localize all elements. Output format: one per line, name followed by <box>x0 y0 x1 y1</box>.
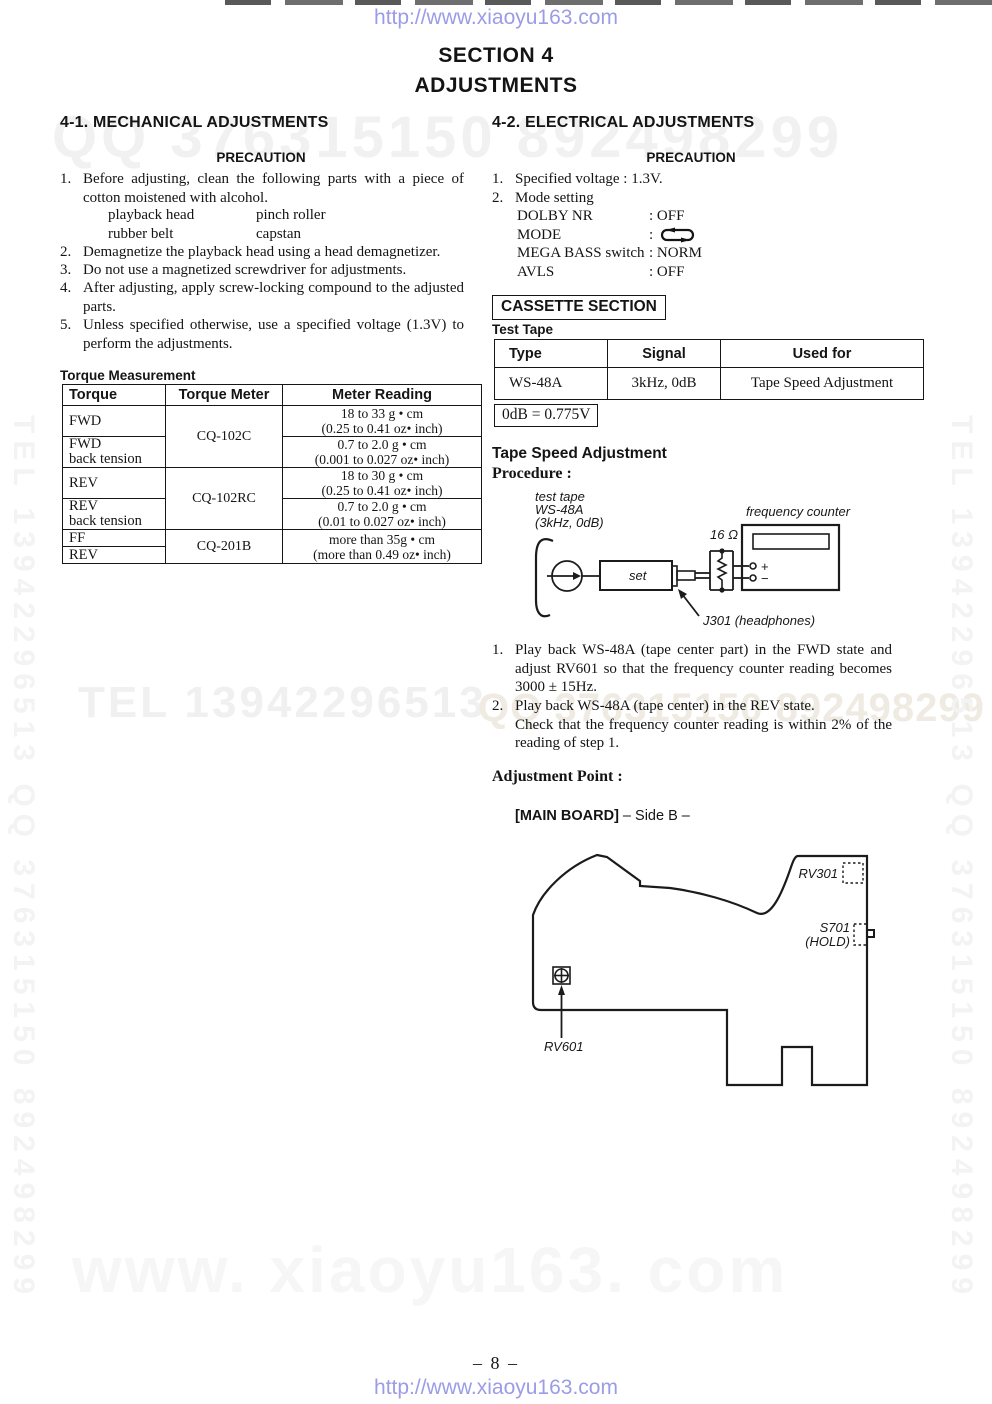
item-text: Before adjusting, clean the following pa… <box>83 170 464 207</box>
reading-ff-rev: more than 35g • cm (more than 0.49 oz• i… <box>283 530 482 564</box>
col-header-torque: Torque <box>63 385 166 406</box>
item-number: 2. <box>60 243 83 262</box>
reading-line: 18 to 30 g • cm <box>287 468 477 483</box>
bottom-url-watermark: http://www.xiaoyu163.com <box>0 1376 992 1400</box>
mode-label: MEGA BASS switch <box>517 244 649 263</box>
reading-line: (0.25 to 0.41 oz• inch) <box>287 421 477 436</box>
main-board-label: [MAIN BOARD] <box>515 808 619 824</box>
mode-value: : OFF <box>649 207 684 226</box>
mode-row-mode: MODE : <box>517 226 892 245</box>
part-playback-head: playback head <box>108 206 256 225</box>
item-text: Mode setting <box>515 189 892 208</box>
watermark-bottom: www. xiaoyu163. com <box>72 1233 788 1307</box>
meter-cq102c: CQ-102C <box>166 406 283 468</box>
set-label: set <box>629 568 648 583</box>
item-text: Demagnetize the playback head using a he… <box>83 243 464 262</box>
parts-to-clean-list: playback head pinch roller rubber belt c… <box>108 206 468 243</box>
meter-cq201b: CQ-201B <box>166 530 283 564</box>
minus-sign: − <box>761 571 769 586</box>
left-precaution-item-1: 1. Before adjusting, clean the following… <box>60 170 464 207</box>
db-reference-box: 0dB = 0.775V <box>494 404 598 427</box>
s701-dotted-box <box>854 924 867 945</box>
item-number: 1. <box>60 170 83 207</box>
col-header-signal: Signal <box>608 340 721 368</box>
cell-line: back tension <box>69 514 161 529</box>
torque-rev2: REV <box>63 547 166 564</box>
section-title: ADJUSTMENTS <box>0 74 992 98</box>
item-text: Unless specified otherwise, use a specif… <box>83 316 464 353</box>
j301-label: J301 (headphones) <box>702 613 815 628</box>
torque-ff: FF <box>63 530 166 547</box>
step-number: 2. <box>492 697 515 753</box>
scan-artifact-strip <box>225 0 992 5</box>
reading-line: (0.25 to 0.41 oz• inch) <box>287 483 477 498</box>
col-header-meter-reading: Meter Reading <box>283 385 482 406</box>
table-row: REV CQ-102RC 18 to 30 g • cm (0.25 to 0.… <box>63 468 482 499</box>
torque-fwd-back-tension: FWD back tension <box>63 437 166 468</box>
step-text-line: Play back WS-48A (tape center) in the RE… <box>515 697 892 716</box>
item-text: After adjusting, apply screw-locking com… <box>83 279 464 316</box>
s701-hold-label: (HOLD) <box>805 934 850 949</box>
reading-line: (0.001 to 0.027 oz• inch) <box>287 452 477 467</box>
mode-label: DOLBY NR <box>517 207 649 226</box>
torque-fwd: FWD <box>63 406 166 437</box>
mode-row-avls: AVLS : OFF <box>517 263 892 282</box>
mode-setting-list: DOLBY NR : OFF MODE : MEGA BASS switch :… <box>492 207 892 281</box>
plug <box>677 571 695 580</box>
mode-value: : OFF <box>649 263 684 282</box>
watermark-left-vertical: TEL 13942296513 QQ 376315150 892498299 <box>6 415 40 1055</box>
mode-row-mega-bass: MEGA BASS switch : NORM <box>517 244 892 263</box>
frequency-counter-label: frequency counter <box>746 504 851 519</box>
colon: : <box>649 226 653 245</box>
torque-measurement-heading: Torque Measurement <box>60 368 196 383</box>
adjustment-point-heading: Adjustment Point : <box>492 768 623 786</box>
item-number: 5. <box>60 316 83 353</box>
meter-cq102rc: CQ-102RC <box>166 468 283 530</box>
reading-fwd-back-tension: 0.7 to 2.0 g • cm (0.001 to 0.027 oz• in… <box>283 437 482 468</box>
s701-label: S701 <box>820 920 850 935</box>
reading-line: 18 to 33 g • cm <box>287 406 477 421</box>
table-header-row: Torque Torque Meter Meter Reading <box>63 385 482 406</box>
left-precaution-item-3: 3. Do not use a magnetized screwdriver f… <box>60 261 464 280</box>
reading-line: 0.7 to 2.0 g • cm <box>287 499 477 514</box>
node-dot <box>719 548 724 553</box>
item-text: Specified voltage : 1.3V. <box>515 170 892 189</box>
reading-line: 0.7 to 2.0 g • cm <box>287 437 477 452</box>
part-rubber-belt: rubber belt <box>108 225 256 244</box>
part-pinch-roller: pinch roller <box>256 206 468 225</box>
torque-rev: REV <box>63 468 166 499</box>
table-row: FWD CQ-102C 18 to 33 g • cm (0.25 to 0.4… <box>63 406 482 437</box>
rv301-dotted-box <box>843 863 863 883</box>
right-precaution-item-1: 1. Specified voltage : 1.3V. <box>492 170 892 189</box>
scanned-service-manual-page: QQ 376315150 892498299 TEL 13942296513 Q… <box>0 0 992 1404</box>
item-number: 4. <box>60 279 83 316</box>
left-precaution-item-2: 2. Demagnetize the playback head using a… <box>60 243 464 262</box>
minus-terminal <box>750 575 756 581</box>
procedure-heading: Procedure : <box>492 465 572 483</box>
torque-rev-back-tension: REV back tension <box>63 499 166 530</box>
step-number: 1. <box>492 641 515 697</box>
left-precaution-item-5: 5. Unless specified otherwise, use a spe… <box>60 316 464 353</box>
table-row: WS-48A 3kHz, 0dB Tape Speed Adjustment <box>495 368 924 400</box>
reading-rev: 18 to 30 g • cm (0.25 to 0.41 oz• inch) <box>283 468 482 499</box>
node-dot <box>719 587 724 592</box>
col-header-torque-meter: Torque Meter <box>166 385 283 406</box>
watermark-right-vertical: TEL 13942296513 QQ 376315150 892498299 <box>944 415 978 1055</box>
reading-line: (more than 0.49 oz• inch) <box>287 547 477 562</box>
main-board-heading: [MAIN BOARD] – Side B – <box>515 808 690 824</box>
loop-mode-icon <box>660 227 696 242</box>
test-tape-label-line3: (3kHz, 0dB) <box>535 515 604 530</box>
reading-rev-back-tension: 0.7 to 2.0 g • cm (0.01 to 0.027 oz• inc… <box>283 499 482 530</box>
cell-line: FWD <box>69 437 161 452</box>
right-precaution-title: PRECAUTION <box>492 150 890 165</box>
j301-arrow-line <box>682 594 699 616</box>
mode-value: : NORM <box>649 244 702 263</box>
item-number: 3. <box>60 261 83 280</box>
reading-line: (0.01 to 0.027 oz• inch) <box>287 514 477 529</box>
step-text: Play back WS-48A (tape center part) in t… <box>515 641 892 697</box>
reading-fwd: 18 to 33 g • cm (0.25 to 0.41 oz• inch) <box>283 406 482 437</box>
right-column-heading: 4-2. ELECTRICAL ADJUSTMENTS <box>492 114 754 132</box>
top-url-watermark: http://www.xiaoyu163.com <box>0 6 992 30</box>
item-text: Do not use a magnetized screwdriver for … <box>83 261 464 280</box>
tape-used-for: Tape Speed Adjustment <box>721 368 924 400</box>
col-header-type: Type <box>495 340 608 368</box>
reel-arrow <box>573 572 581 580</box>
mode-label: MODE <box>517 226 649 245</box>
rv301-label: RV301 <box>798 866 838 881</box>
test-tape-table: Type Signal Used for WS-48A 3kHz, 0dB Ta… <box>494 339 924 400</box>
table-header-row: Type Signal Used for <box>495 340 924 368</box>
item-number: 1. <box>492 170 515 189</box>
test-tape-heading: Test Tape <box>492 322 553 337</box>
right-precaution-item-2: 2. Mode setting <box>492 189 892 208</box>
procedure-step-1: 1. Play back WS-48A (tape center part) i… <box>492 641 892 697</box>
side-b-label: – Side B – <box>619 808 690 824</box>
rv601-arrowhead <box>558 985 565 995</box>
part-capstan: capstan <box>256 225 468 244</box>
cell-line: REV <box>69 499 161 514</box>
mode-row-dolby: DOLBY NR : OFF <box>517 207 892 226</box>
left-column-heading: 4-1. MECHANICAL ADJUSTMENTS <box>60 114 329 132</box>
table-row: FF CQ-201B more than 35g • cm (more than… <box>63 530 482 547</box>
plus-terminal <box>750 563 756 569</box>
tape-signal: 3kHz, 0dB <box>608 368 721 400</box>
cassette-section-box: CASSETTE SECTION <box>492 295 666 320</box>
cell-line: back tension <box>69 452 161 467</box>
item-number: 2. <box>492 189 515 208</box>
resistance-label: 16 Ω <box>710 527 738 542</box>
left-precaution-item-4: 4. After adjusting, apply screw-locking … <box>60 279 464 316</box>
mode-value: : <box>649 226 696 245</box>
tape-path-curve <box>536 539 553 616</box>
procedure-step-2: 2. Play back WS-48A (tape center) in the… <box>492 697 892 753</box>
rv601-label: RV601 <box>544 1039 584 1054</box>
tape-speed-test-setup-diagram: test tape WS-48A (3kHz, 0dB) frequency c… <box>495 488 895 640</box>
section-number: SECTION 4 <box>0 44 992 68</box>
main-board-diagram: RV301 S701 (HOLD) RV601 <box>520 848 880 1103</box>
mode-label: AVLS <box>517 263 649 282</box>
tape-type: WS-48A <box>495 368 608 400</box>
left-precaution-title: PRECAUTION <box>60 150 462 165</box>
reading-line: more than 35g • cm <box>287 532 477 547</box>
step-text: Play back WS-48A (tape center) in the RE… <box>515 697 892 753</box>
watermark-mid-left: TEL 13942296513 <box>78 678 487 728</box>
tape-speed-adjustment-heading: Tape Speed Adjustment <box>492 445 667 463</box>
col-header-used-for: Used for <box>721 340 924 368</box>
resistor-symbol <box>718 551 726 590</box>
torque-measurement-table: Torque Torque Meter Meter Reading FWD CQ… <box>62 384 482 564</box>
frequency-counter-display <box>753 534 829 549</box>
page-number: – 8 – <box>0 1353 992 1374</box>
step-text-line: Check that the frequency counter reading… <box>515 716 892 753</box>
